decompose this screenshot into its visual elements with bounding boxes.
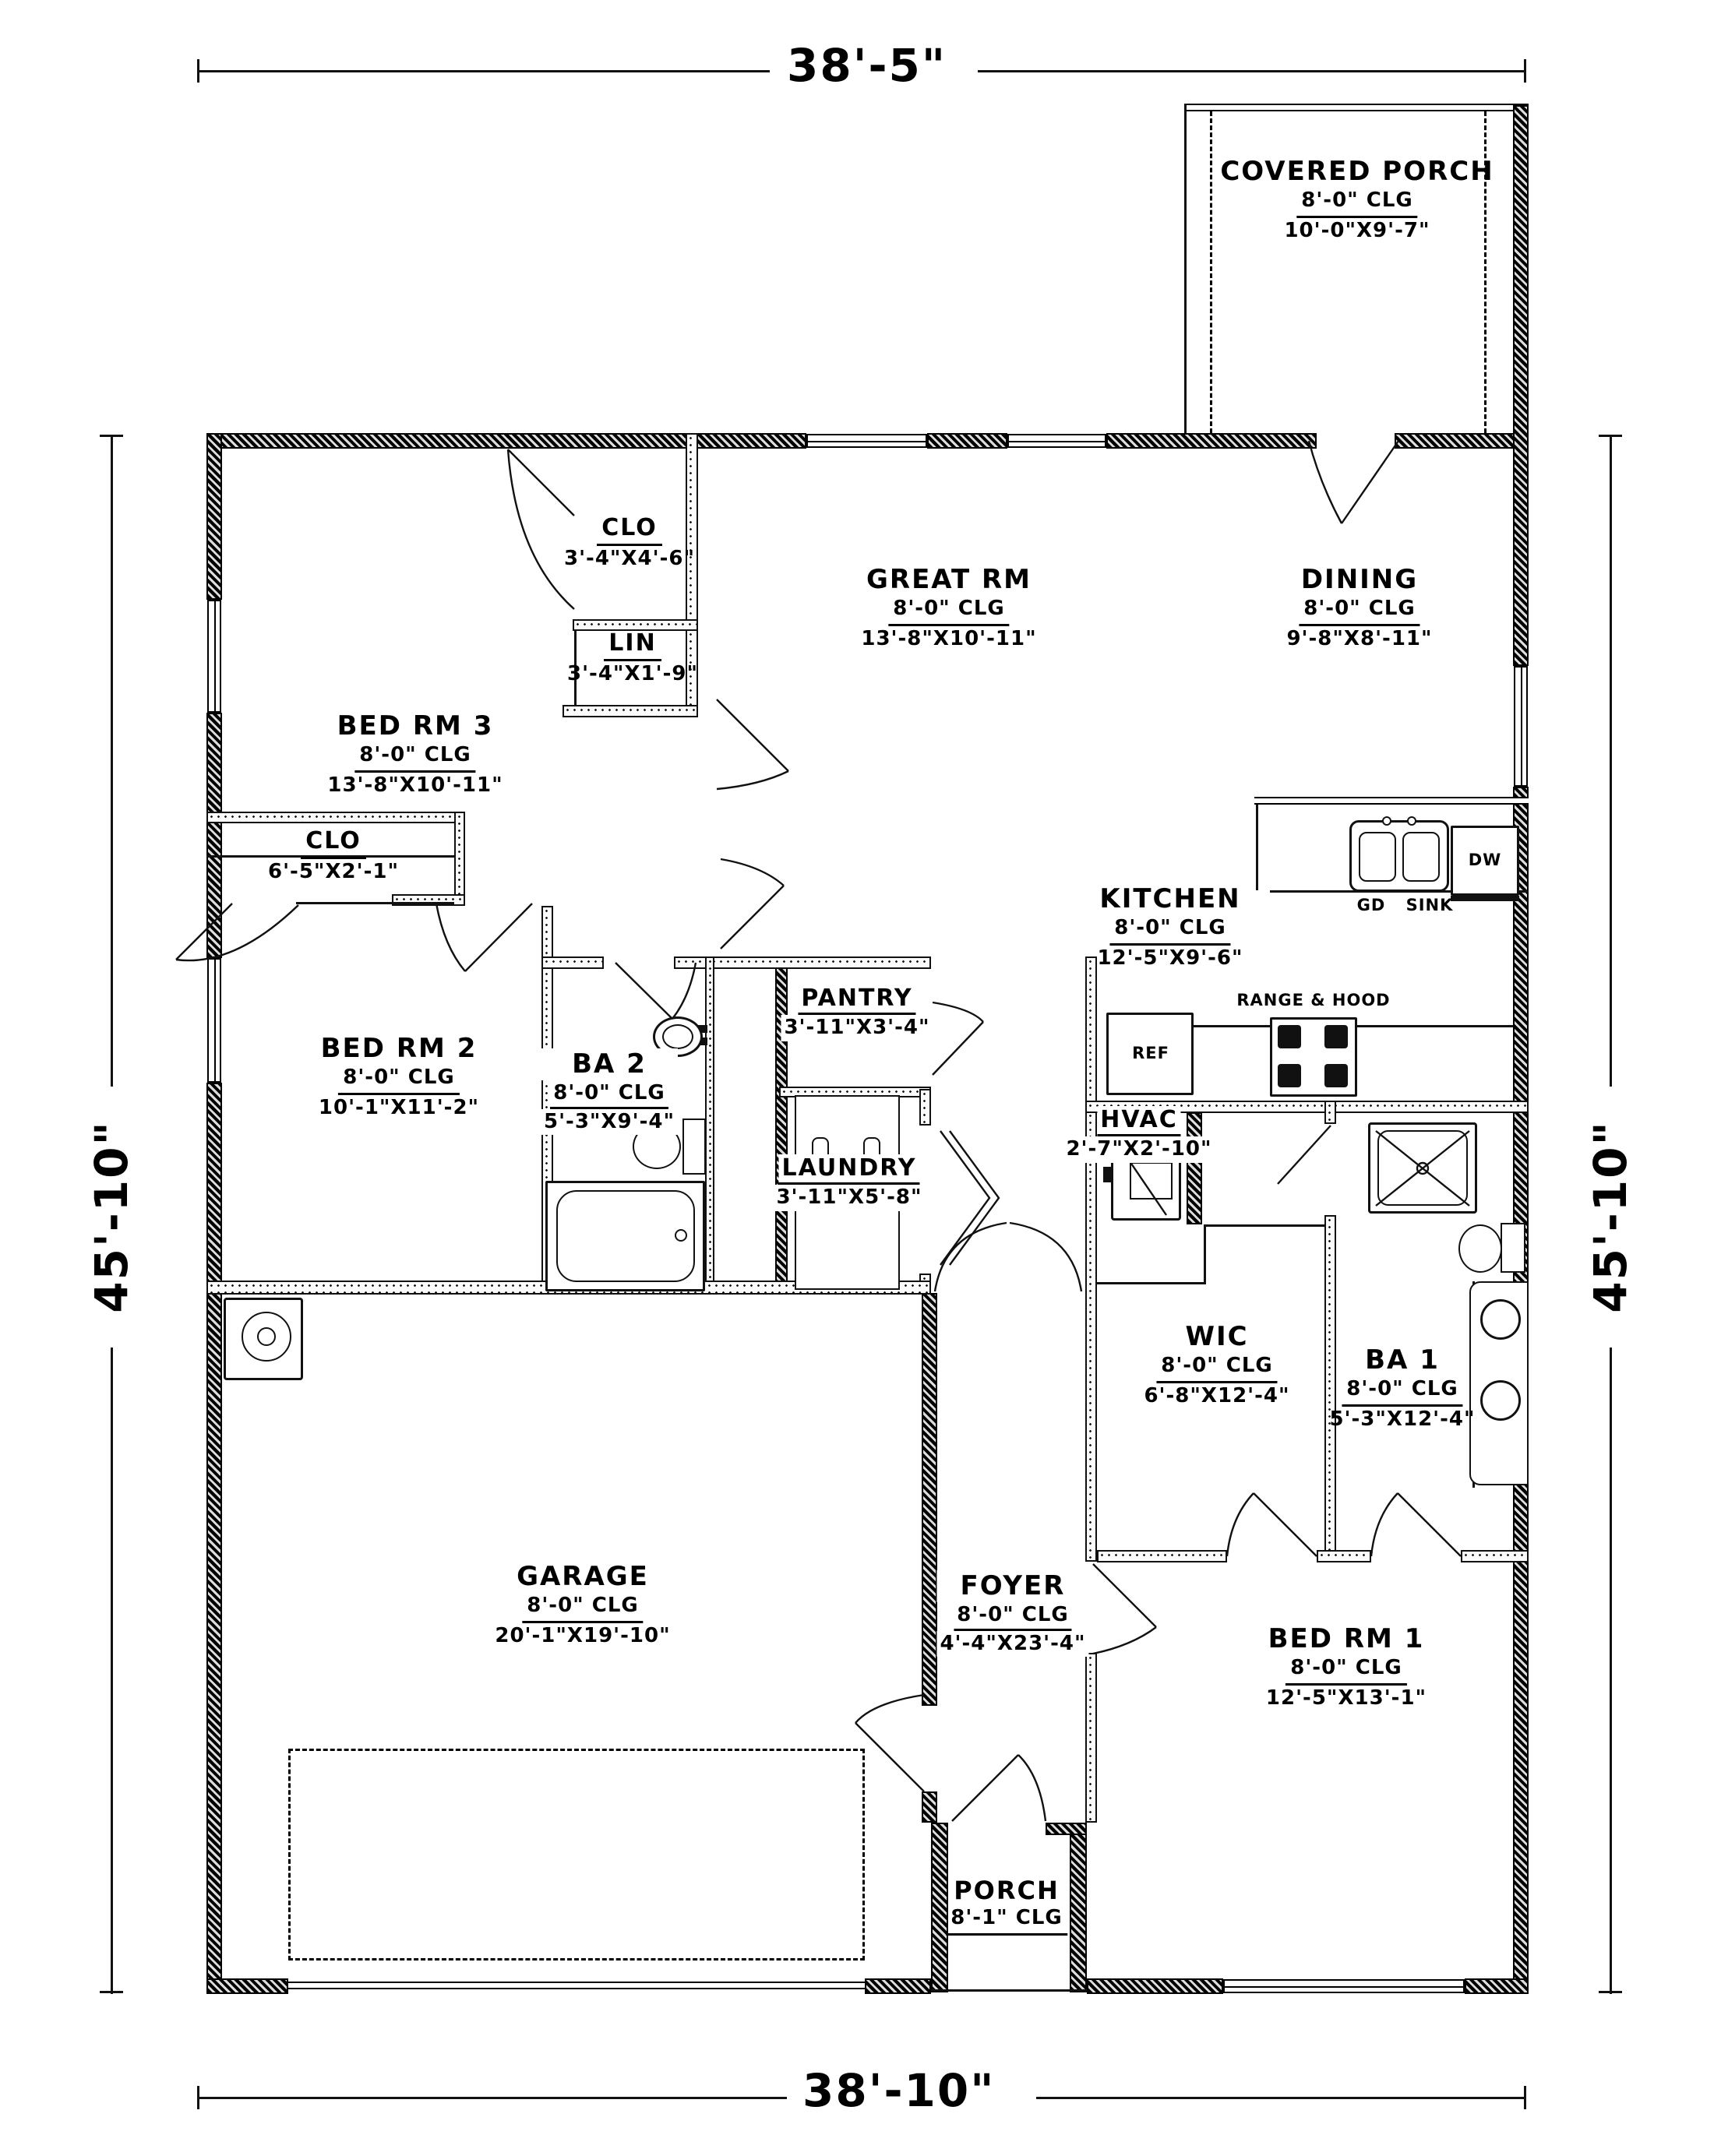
door-arch-hall	[935, 1223, 1081, 1291]
door-front	[952, 1755, 1046, 1821]
room-label-bed-rm-2: BED RM 2 8'-0" CLG 10'-1"X11'-2"	[319, 1033, 479, 1121]
dim-label-bottom: 38'-10"	[795, 2064, 1003, 2117]
shower-x-icon	[1376, 1131, 1469, 1206]
door-bifold-laundry	[940, 1131, 999, 1265]
door-swing-layer	[0, 0, 1714, 2156]
refrigerator-label: REF	[1132, 1044, 1169, 1062]
room-label-great-rm: GREAT RM 8'-0" CLG 13'-8"X10'-11"	[861, 564, 1036, 652]
door-pantry	[933, 1002, 983, 1075]
door-wic-ba1	[1278, 1126, 1331, 1184]
room-label-covered-porch: COVERED PORCH 8'-0" CLG 10'-0"X9'-7"	[1220, 156, 1494, 244]
floor-plan: 38'-5" 38'-10" 45'-10" 45'-10"	[0, 0, 1714, 2156]
room-label-ba-2: BA 2 8'-0" CLG 5'-3"X9'-4"	[541, 1048, 678, 1135]
dim-label-top: 38'-5"	[779, 39, 954, 92]
room-label-foyer: FOYER 8'-0" CLG 4'-4"X23'-4"	[936, 1570, 1088, 1657]
room-label-pantry: PANTRY 3'-11"X3'-4"	[781, 985, 933, 1041]
door-wic	[1227, 1493, 1317, 1556]
door-hall	[721, 859, 784, 949]
room-label-dining: DINING 8'-0" CLG 9'-8"X8'-11"	[1286, 564, 1432, 652]
sink-label: SINK	[1406, 896, 1454, 914]
garbage-disposal-label: GD	[1357, 896, 1386, 914]
room-label-bed-rm-1: BED RM 1 8'-0" CLG 12'-5"X13'-1"	[1266, 1623, 1427, 1711]
room-label-wic: WIC 8'-0" CLG 6'-8"X12'-4"	[1144, 1321, 1289, 1409]
door-clo2	[176, 904, 298, 960]
room-label-hvac: HVAC 2'-7"X2'-10"	[1063, 1106, 1215, 1163]
dim-label-left: 45'-10"	[85, 1112, 138, 1320]
door-bedrm1	[1093, 1564, 1156, 1654]
room-label-kitchen: KITCHEN 8'-0" CLG 12'-5"X9'-6"	[1097, 883, 1243, 971]
room-label-porch: PORCH 8'-1" CLG	[946, 1876, 1067, 1936]
door-garage	[855, 1695, 924, 1791]
dim-label-right: 45'-10"	[1584, 1112, 1637, 1320]
room-label-laundry: LAUNDRY 3'-11"X5'-8"	[773, 1154, 925, 1211]
door-bedrm3	[717, 699, 788, 789]
room-label-clo-2: CLO 6'-5"X2'-1"	[268, 827, 399, 886]
room-label-garage: GARAGE 8'-0" CLG 20'-1"X19'-10"	[495, 1561, 670, 1649]
dishwasher-label: DW	[1469, 851, 1502, 869]
door-bedrm2	[436, 904, 532, 971]
range-hood-label: RANGE & HOOD	[1236, 991, 1390, 1009]
room-label-bed-rm-3: BED RM 3 8'-0" CLG 13'-8"X10'-11"	[327, 710, 503, 798]
door-dining-porch	[1309, 441, 1398, 523]
door-ba2	[615, 963, 696, 1019]
room-label-clo-top: CLO 3'-4"X4'-6"	[564, 514, 695, 572]
room-label-ba-1: BA 1 8'-0" CLG 5'-3"X12'-4"	[1329, 1344, 1475, 1432]
door-ba1	[1371, 1493, 1461, 1556]
room-label-lin: LIN 3'-4"X1'-9"	[567, 629, 698, 688]
